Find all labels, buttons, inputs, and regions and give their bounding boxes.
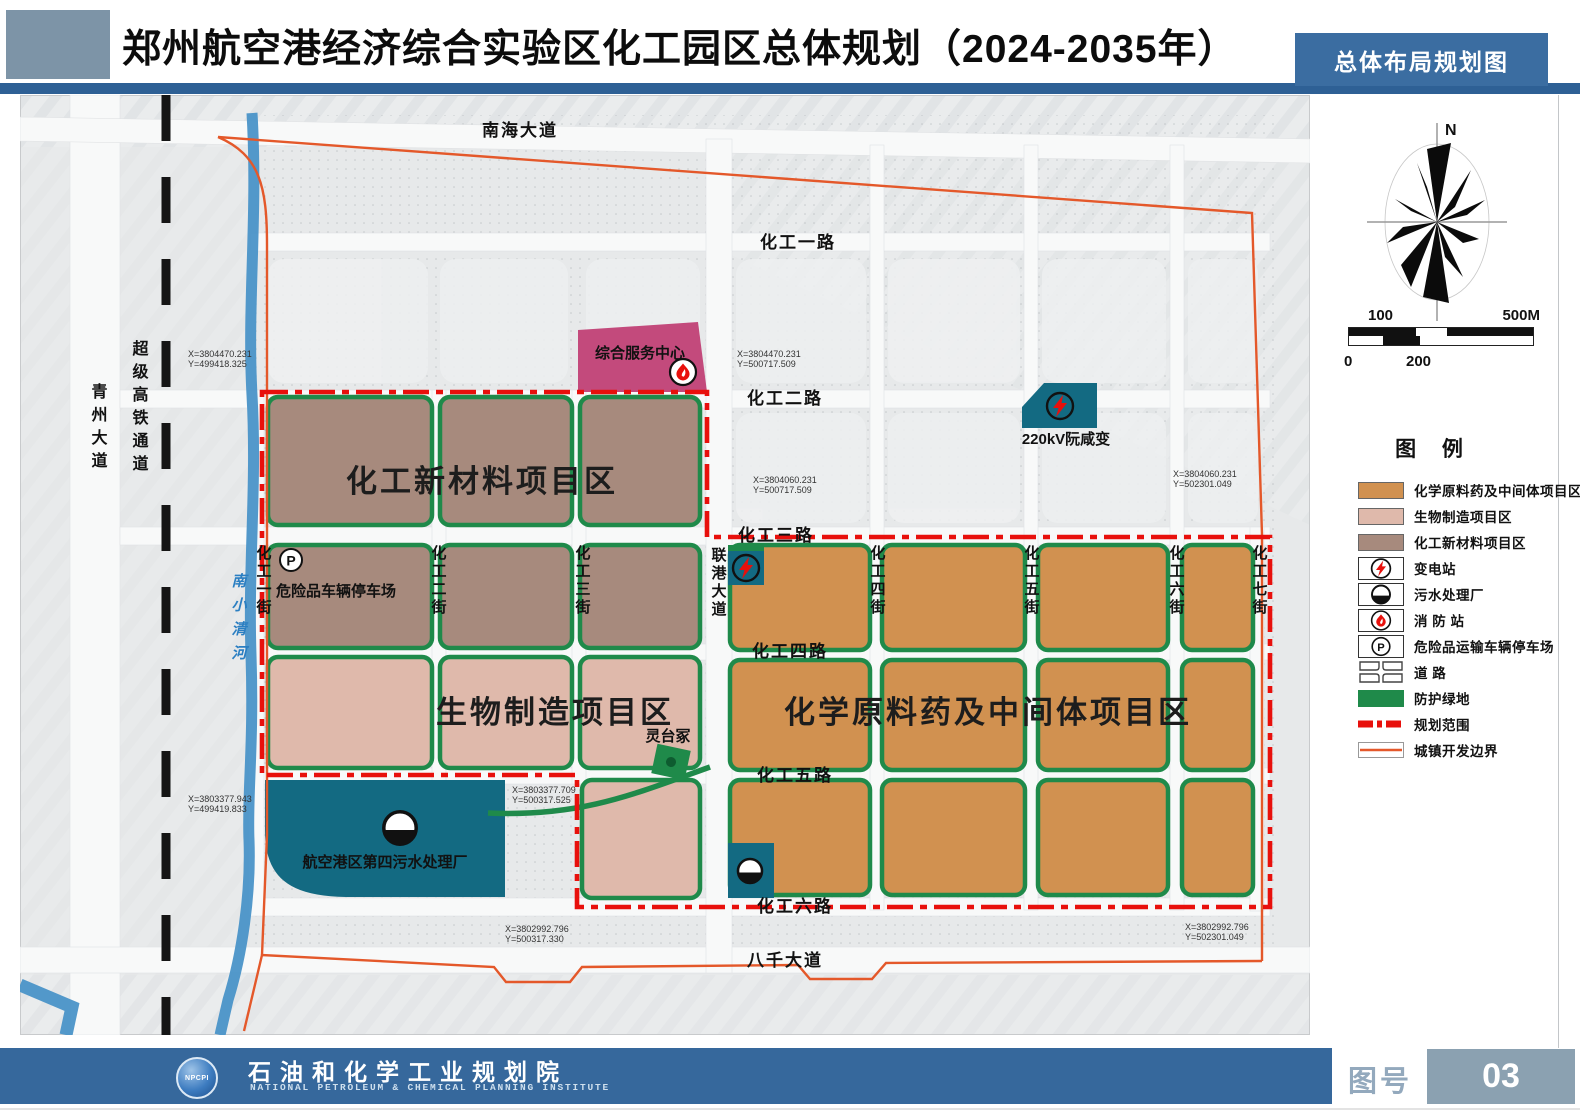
road-icon xyxy=(1358,660,1404,684)
sewage-icon-small xyxy=(738,859,762,884)
sewage-icon-plant xyxy=(384,812,416,846)
coord-4-y: Y=499419.833 xyxy=(188,804,247,814)
plan-sheet: 郑州航空港经济综合实验区化工园区总体规划（2024-2035年） 总体布局规划图 xyxy=(0,0,1580,1117)
street-label-4: 化工四街 xyxy=(869,544,887,617)
sewage-icon xyxy=(1366,584,1396,605)
scale-500m: 500M xyxy=(1502,307,1540,324)
legend-label: 生物制造项目区 xyxy=(1414,506,1512,526)
coord-7-y: Y=502301.049 xyxy=(1185,932,1244,942)
scale-200: 200 xyxy=(1406,353,1431,370)
parking-icon xyxy=(280,549,302,571)
coord-5-y: Y=500317.525 xyxy=(512,795,571,805)
legend-label: 变电站 xyxy=(1414,558,1456,578)
coord-3-y: Y=502301.049 xyxy=(1173,479,1232,489)
new-materials-swatch xyxy=(1358,534,1404,551)
road-label-hg5: 化工五路 xyxy=(757,765,833,785)
sheet-number-label: 图号 xyxy=(1348,1058,1412,1100)
coord-1-x: X=3804470.231 xyxy=(737,349,801,359)
coord-0-x: X=3804470.231 xyxy=(188,349,252,359)
legend-item-fire: 消 防 站 xyxy=(1358,607,1580,633)
coord-6-x: X=3802992.796 xyxy=(505,924,569,934)
legend-item-bio: 生物制造项目区 xyxy=(1358,503,1580,529)
street-label-1: 化工一街 xyxy=(255,544,273,617)
river-label: 南小清河 xyxy=(228,573,247,669)
legend-item-api: 化学原料药及中间体项目区 xyxy=(1358,477,1580,503)
fire-station-icon xyxy=(670,359,696,385)
coord-2-x: X=3804060.231 xyxy=(753,475,817,485)
road-label-baqian: 八千大道 xyxy=(747,950,823,970)
coord-0-y: Y=499418.325 xyxy=(188,359,247,369)
street-label-7: 化工七街 xyxy=(1251,544,1269,617)
header-corner-block xyxy=(6,10,110,79)
street-label-3: 化工三街 xyxy=(574,544,592,617)
legend-label: 危险品运输车辆停车场 xyxy=(1414,636,1554,656)
scale-0: 0 xyxy=(1344,353,1352,370)
api-swatch xyxy=(1358,482,1404,499)
sheet-name-tag: 总体布局规划图 xyxy=(1295,33,1548,86)
sheet-number-value: 03 xyxy=(1427,1049,1575,1104)
legend-title: 图 例 xyxy=(1310,433,1558,463)
north-label: N xyxy=(1445,122,1457,139)
road-qingzhou xyxy=(70,95,120,1035)
road-label-hg1: 化工一路 xyxy=(760,232,836,252)
road-label-liangang: 联港大道 xyxy=(710,547,727,619)
legend-item-parking: 危险品运输车辆停车场 xyxy=(1358,633,1580,659)
flame-icon xyxy=(1366,610,1396,631)
red-dash-icon xyxy=(1358,719,1404,729)
coord-3-x: X=3804060.231 xyxy=(1173,469,1237,479)
scale-bar-row-bottom xyxy=(1348,336,1534,346)
legend-item-new-materials: 化工新材料项目区 xyxy=(1358,529,1580,555)
scale-bar: 100 500M 0 200 xyxy=(1348,307,1534,377)
substation-220kv-label: 220kV阮咸变 xyxy=(1022,430,1110,448)
tomb-label: 灵台冢 xyxy=(645,727,690,745)
coord-2-y: Y=500717.509 xyxy=(753,485,812,495)
coord-6-y: Y=500317.330 xyxy=(505,934,564,944)
coord-7-x: X=3802992.796 xyxy=(1185,922,1249,932)
scale-100: 100 xyxy=(1368,307,1393,324)
legend-label: 化工新材料项目区 xyxy=(1414,532,1526,552)
bottom-divider xyxy=(0,1108,1580,1110)
lightning-icon xyxy=(1366,558,1396,579)
legend: 化学原料药及中间体项目区 生物制造项目区 化工新材料项目区 变电站 污水处理厂 … xyxy=(1358,477,1580,763)
coord-5-x: X=3803377.709 xyxy=(512,785,576,795)
legend-item-road: 道 路 xyxy=(1358,659,1580,685)
legend-item-sewage: 污水处理厂 xyxy=(1358,581,1580,607)
legend-label: 化学原料药及中间体项目区 xyxy=(1414,480,1580,500)
road-huagong-3 xyxy=(120,527,1270,545)
legend-item-substation: 变电站 xyxy=(1358,555,1580,581)
road-label-hg3: 化工三路 xyxy=(738,525,814,545)
legend-label: 污水处理厂 xyxy=(1414,584,1484,604)
street-label-6: 化工六街 xyxy=(1168,544,1186,617)
service-center-label: 综合服务中心 xyxy=(595,344,685,362)
north-compass: N xyxy=(1367,115,1507,330)
bio-swatch xyxy=(1358,508,1404,525)
coord-1-y: Y=500717.509 xyxy=(737,359,796,369)
zone-label-new-materials: 化工新材料项目区 xyxy=(346,464,618,499)
side-panel: N 100 500M 0 200 图 例 化学原料药及中间体项目区 xyxy=(1310,95,1559,1048)
street-label-5: 化工五街 xyxy=(1023,544,1041,617)
parking-icon xyxy=(1366,636,1396,657)
road-label-nanhai: 南海大道 xyxy=(482,120,558,140)
map-canvas: P xyxy=(20,95,1310,1035)
institute-name-en: NATIONAL PETROLEUM & CHEMICAL PLANNING I… xyxy=(250,1082,610,1093)
legend-label: 消 防 站 xyxy=(1414,610,1465,630)
coord-4-x: X=3803377.943 xyxy=(188,794,252,804)
road-label-hg6: 化工六路 xyxy=(757,896,833,916)
green-swatch xyxy=(1358,690,1404,707)
legend-label: 道 路 xyxy=(1414,662,1446,682)
legend-label: 规划范围 xyxy=(1414,714,1470,734)
road-baqian xyxy=(20,947,1310,973)
road-label-hg2: 化工二路 xyxy=(747,388,823,408)
zone-new-materials-blocks xyxy=(268,397,700,648)
sewage-plant-label: 航空港区第四污水处理厂 xyxy=(302,853,467,871)
legend-item-boundary: 城镇开发边界 xyxy=(1358,737,1580,763)
sewage-plant-zone xyxy=(265,780,505,897)
page-title: 郑州航空港经济综合实验区化工园区总体规划（2024-2035年） xyxy=(122,18,1238,74)
legend-item-scope: 规划范围 xyxy=(1358,711,1580,737)
legend-label: 防护绿地 xyxy=(1414,688,1470,708)
legend-label: 城镇开发边界 xyxy=(1414,740,1498,760)
street-label-2: 化工二街 xyxy=(430,544,448,617)
parking-label: 危险品车辆停车场 xyxy=(276,582,396,600)
orange-line-icon xyxy=(1358,742,1404,758)
legend-item-green: 防护绿地 xyxy=(1358,685,1580,711)
zone-label-api: 化学原料药及中间体项目区 xyxy=(784,695,1192,730)
plan-map: P xyxy=(20,95,1310,1035)
npcpi-logo: NPCPI xyxy=(176,1057,218,1099)
zone-label-bio: 生物制造项目区 xyxy=(436,695,674,730)
road-label-hg4: 化工四路 xyxy=(752,641,828,661)
